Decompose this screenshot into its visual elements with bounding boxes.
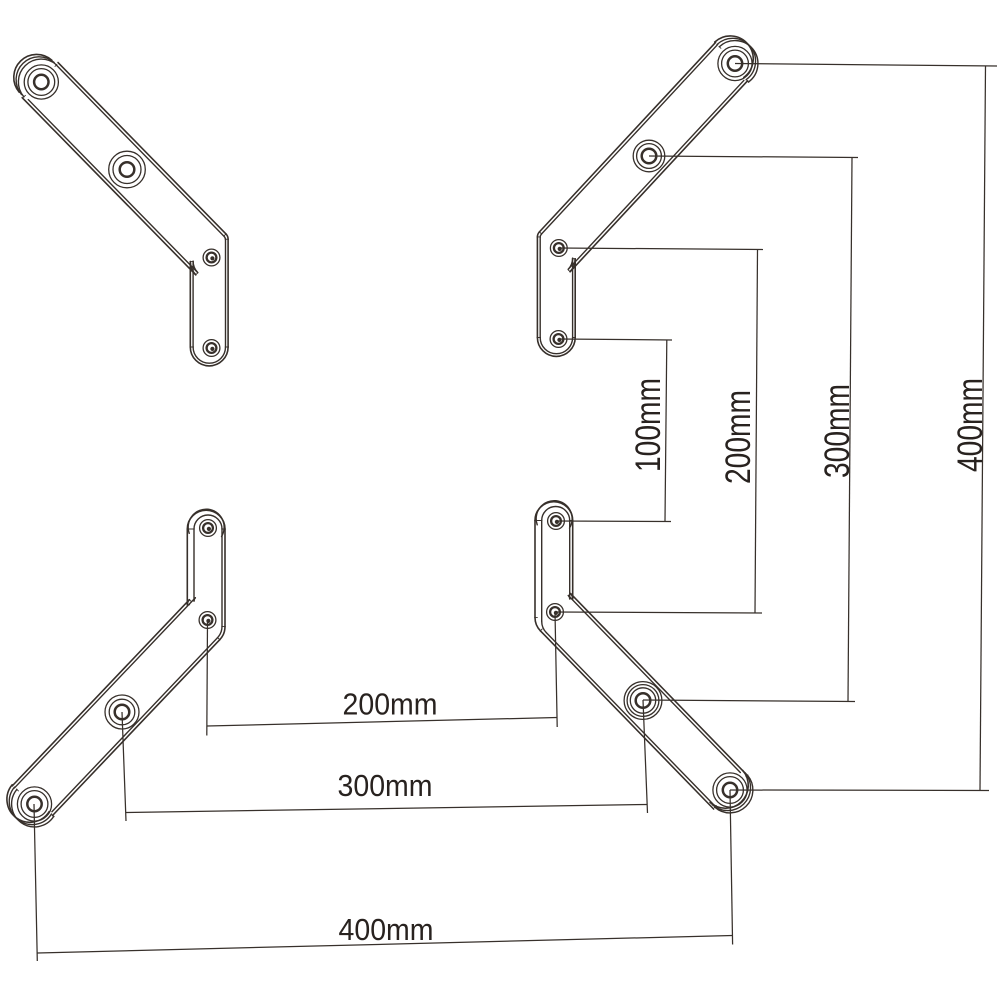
svg-text:200mm: 200mm bbox=[343, 687, 438, 722]
svg-text:300mm: 300mm bbox=[817, 384, 857, 478]
svg-text:400mm: 400mm bbox=[950, 378, 990, 472]
svg-text:100mm: 100mm bbox=[628, 378, 668, 472]
svg-text:200mm: 200mm bbox=[718, 390, 758, 484]
svg-text:400mm: 400mm bbox=[339, 912, 434, 947]
svg-text:300mm: 300mm bbox=[338, 768, 433, 803]
